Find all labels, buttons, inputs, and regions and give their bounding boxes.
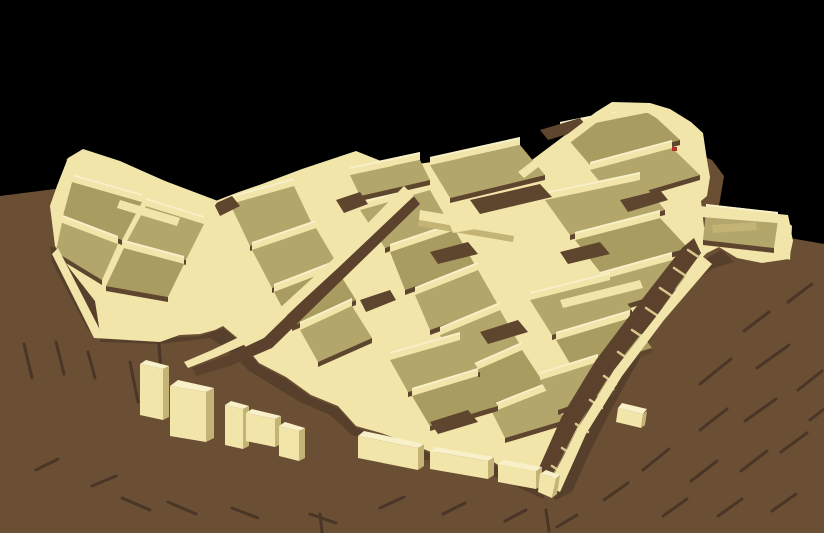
detached-block-side xyxy=(206,388,214,442)
model-viewer xyxy=(0,0,824,533)
detached-block-face xyxy=(140,364,163,420)
terrain-streak xyxy=(320,514,322,532)
detached-block-face xyxy=(225,405,243,449)
detached-block-face xyxy=(246,413,275,447)
detached-block-face xyxy=(279,426,299,461)
detached-block-face xyxy=(170,386,206,442)
red-marker xyxy=(672,147,677,151)
detached-block-side xyxy=(299,428,305,461)
detached-block-side xyxy=(163,366,169,420)
model-viewport-canvas[interactable] xyxy=(0,0,824,533)
detached-block-side xyxy=(418,444,424,470)
